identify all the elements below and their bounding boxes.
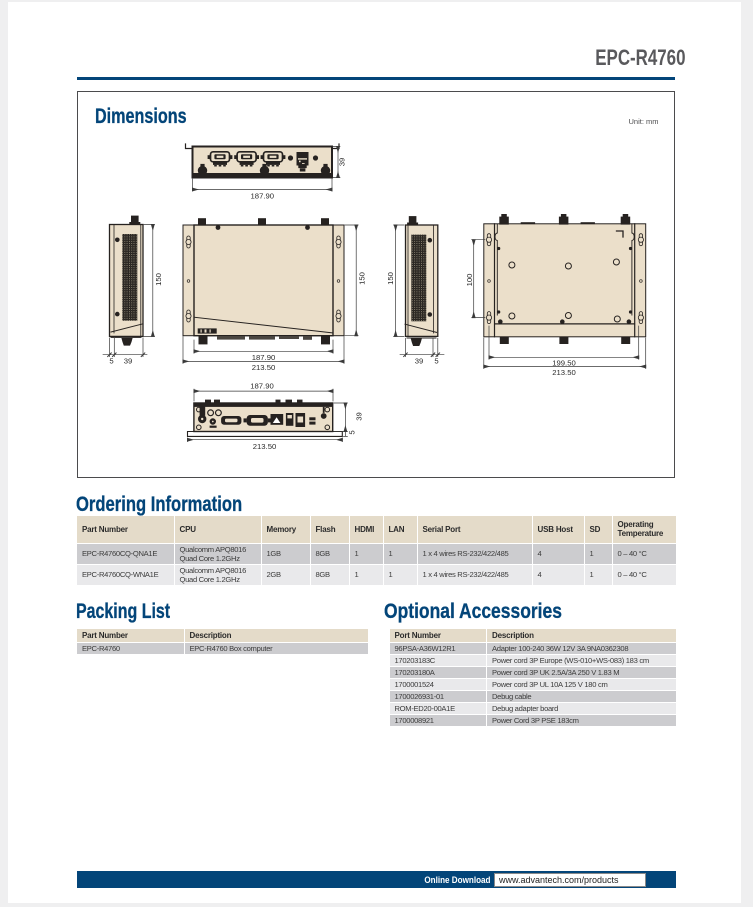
svg-text:39: 39 — [123, 356, 132, 365]
svg-text:5: 5 — [347, 430, 356, 434]
svg-text:187.90: 187.90 — [250, 191, 274, 200]
svg-text:5: 5 — [434, 356, 438, 365]
svg-text:213.50: 213.50 — [252, 441, 276, 450]
svg-text:150: 150 — [154, 273, 163, 286]
svg-text:187.90: 187.90 — [251, 352, 275, 361]
svg-text:100: 100 — [465, 273, 474, 286]
svg-text:39: 39 — [337, 157, 346, 166]
svg-text:39: 39 — [414, 356, 423, 365]
svg-text:150: 150 — [386, 272, 395, 285]
svg-text:213.50: 213.50 — [552, 368, 576, 377]
svg-text:213.50: 213.50 — [251, 362, 275, 371]
svg-text:199.50: 199.50 — [552, 358, 576, 367]
svg-text:187.90: 187.90 — [250, 381, 274, 390]
svg-text:150: 150 — [357, 272, 366, 285]
svg-text:39: 39 — [354, 412, 363, 421]
svg-text:5: 5 — [109, 356, 113, 365]
